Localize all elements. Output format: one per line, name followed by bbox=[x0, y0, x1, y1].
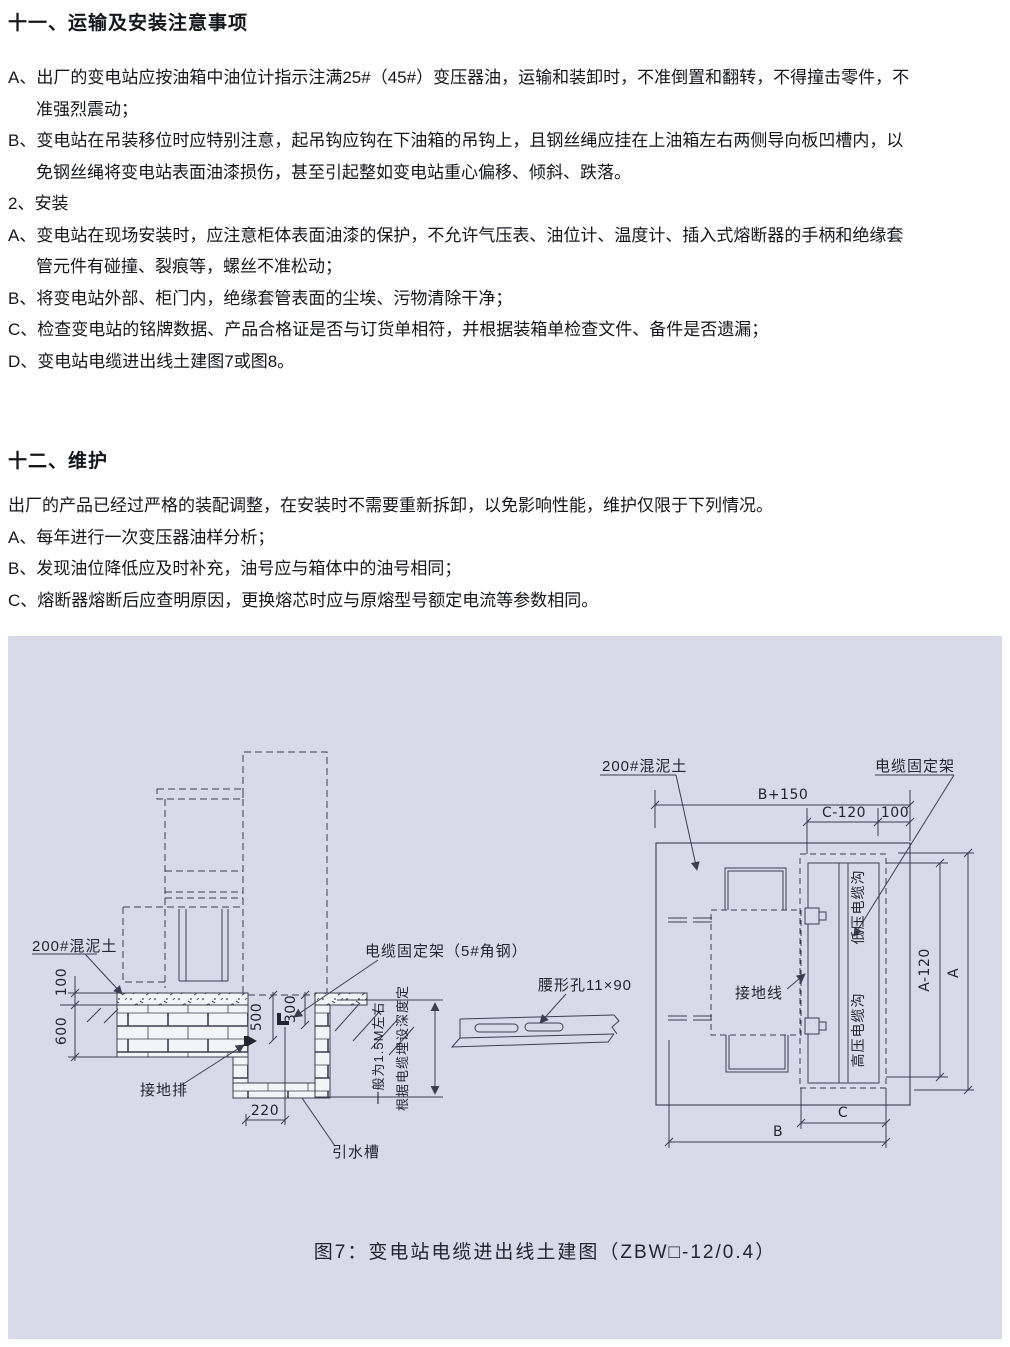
paragraph-line: 出厂的产品已经过严格的装配调整，在安装时不需要重新拆卸，以免影响性能，维护仅限于… bbox=[8, 490, 1008, 522]
dim-c: C bbox=[838, 1105, 848, 1121]
label-depth-note-2: 一般为1.5M左右 bbox=[371, 1002, 386, 1105]
figure-caption: 图7：变电站电缆进出线土建图（ZBW□-12/0.4） bbox=[314, 1241, 776, 1263]
section11-body: A、出厂的变电站应按油箱中油位计指示注满25#（45#）变压器油，运输和装卸时，… bbox=[8, 62, 1008, 377]
paragraph-line: 2、安装 bbox=[8, 188, 1008, 220]
dim-a: A bbox=[946, 968, 962, 978]
plan-view-cabinet bbox=[668, 868, 801, 1072]
label-ground-wire: 接地线 bbox=[735, 985, 783, 1002]
paragraph-line: C、检查变电站的铭牌数据、产品合格证是否与订货单相符，并根据装箱单检查文件、备件… bbox=[8, 314, 1008, 346]
dim-b: B bbox=[773, 1124, 783, 1140]
paragraph-line: A、每年进行一次变压器油样分析； bbox=[8, 522, 1008, 554]
angle-steel-bar bbox=[452, 1015, 619, 1047]
section-view-cabinet-outline bbox=[123, 752, 327, 995]
paragraph-line: 准强烈震动； bbox=[8, 94, 1008, 126]
label-cable-bracket-plan: 电缆固定架 bbox=[875, 758, 955, 775]
label-cable-bracket-steel: 电缆固定架（5#角钢） bbox=[365, 943, 528, 960]
section11-heading: 十一、运输及安装注意事项 bbox=[8, 8, 248, 35]
dim-300: 300 bbox=[283, 995, 299, 1023]
dim-100-cap: 100 bbox=[54, 968, 70, 996]
dim-220: 220 bbox=[251, 1103, 279, 1119]
label-hv-trench: 高压电缆沟 bbox=[850, 993, 866, 1068]
paragraph-line: A、出厂的变电站应按油箱中油位计指示注满25#（45#）变压器油，运输和装卸时，… bbox=[8, 62, 1008, 94]
label-lv-trench: 低压电缆沟 bbox=[850, 870, 866, 945]
figure7-drawing: 200#混泥土 电缆固定架（5#角钢） 腰形孔11×90 接地排 引水槽 根据电… bbox=[8, 636, 1002, 1339]
section12-heading: 十二、维护 bbox=[8, 446, 108, 473]
paragraph-line: B、将变电站外部、柜门内，绝缘套管表面的尘埃、污物清除干净； bbox=[8, 283, 1008, 315]
section-view-cable-duct bbox=[179, 909, 228, 981]
paragraph-line: 管元件有碰撞、裂痕等，螺丝不准松动； bbox=[8, 251, 1008, 283]
paragraph-line: C、熔断器熔断后应查明原因，更换熔芯时应与原熔型号额定电流等参数相同。 bbox=[8, 585, 1008, 617]
label-slot-hole: 腰形孔11×90 bbox=[538, 977, 632, 994]
dim-a-minus-120: A-120 bbox=[917, 948, 933, 992]
label-depth-note-1: 根据电缆埋设深度定 bbox=[395, 985, 410, 1111]
figure7-panel: 200#混泥土 电缆固定架（5#角钢） 腰形孔11×90 接地排 引水槽 根据电… bbox=[8, 636, 1002, 1339]
dim-b-plus-150: B+150 bbox=[758, 787, 809, 803]
plan-view-trench bbox=[800, 854, 886, 1088]
paragraph-line: D、变电站电缆进出线土建图7或图8。 bbox=[8, 346, 1008, 378]
dim-100-edge: 100 bbox=[881, 805, 909, 821]
paragraph-line: 免钢丝绳将变电站表面油漆损伤，甚至引起整如变电站重心偏移、倾斜、跌落。 bbox=[8, 157, 1008, 189]
dim-c-minus-120: C-120 bbox=[822, 805, 866, 821]
paragraph-line: B、变电站在吊装移位时应特别注意，起吊钩应钩在下油箱的吊钩上，且钢丝绳应挂在上油… bbox=[8, 125, 1008, 157]
dim-500: 500 bbox=[249, 1003, 265, 1031]
label-concrete-plan: 200#混泥土 bbox=[602, 758, 687, 775]
paragraph-line: A、变电站在现场安装时，应注意柜体表面油漆的保护，不允许气压表、油位计、温度计、… bbox=[8, 220, 1008, 252]
paragraph-line: B、发现油位降低应及时补充，油号应与箱体中的油号相同； bbox=[8, 553, 1008, 585]
section12-body: 出厂的产品已经过严格的装配调整，在安装时不需要重新拆卸，以免影响性能，维护仅限于… bbox=[8, 490, 1008, 616]
section-view-leaders bbox=[32, 954, 566, 1146]
label-concrete-section: 200#混泥土 bbox=[32, 938, 117, 955]
ground-bar-symbol bbox=[244, 1036, 257, 1046]
label-drain: 引水槽 bbox=[332, 1144, 380, 1161]
dim-600-wall: 600 bbox=[54, 1017, 70, 1045]
dimension-ticks bbox=[71, 801, 972, 1146]
label-ground-bar: 接地排 bbox=[140, 1082, 188, 1099]
